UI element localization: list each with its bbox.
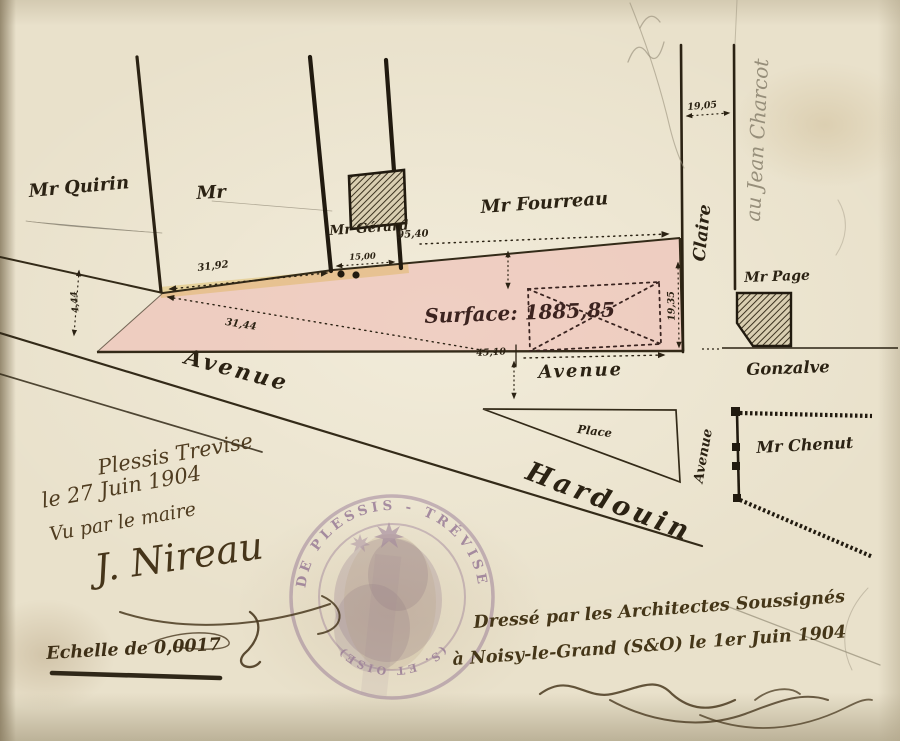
gerard-plot <box>310 57 406 279</box>
label-owner-page: Mr Page <box>744 269 810 285</box>
place-triangle <box>483 409 680 482</box>
page-plot <box>702 293 898 349</box>
plan-document: DE PLESSIS - TRÉVISE (S. ET OISE) Mr Qui… <box>0 0 900 741</box>
measure-19-35: 19,35 <box>667 291 678 321</box>
measure-19-05: 19,05 <box>687 100 717 112</box>
architects-signature <box>540 684 735 707</box>
measure-95-40: 95,40 <box>397 229 429 241</box>
measure-4-44: 4,44 <box>71 291 82 314</box>
label-owner-anon: Mr <box>196 183 226 203</box>
claire-street-lines <box>681 45 735 352</box>
scale-underline <box>52 673 220 678</box>
page-building <box>737 293 791 346</box>
label-street-gonzalve: Gonzalve <box>746 359 830 378</box>
label-avenue-mid: Avenue <box>538 361 623 382</box>
chenut-plot <box>731 407 873 557</box>
measure-15-00: 15,00 <box>349 253 376 263</box>
quirin-plot-line <box>137 57 161 292</box>
label-surface: Surface: 1885,85 <box>424 299 615 326</box>
measure-45-10: 45,10 <box>476 347 506 358</box>
parcel-surface <box>97 238 683 352</box>
